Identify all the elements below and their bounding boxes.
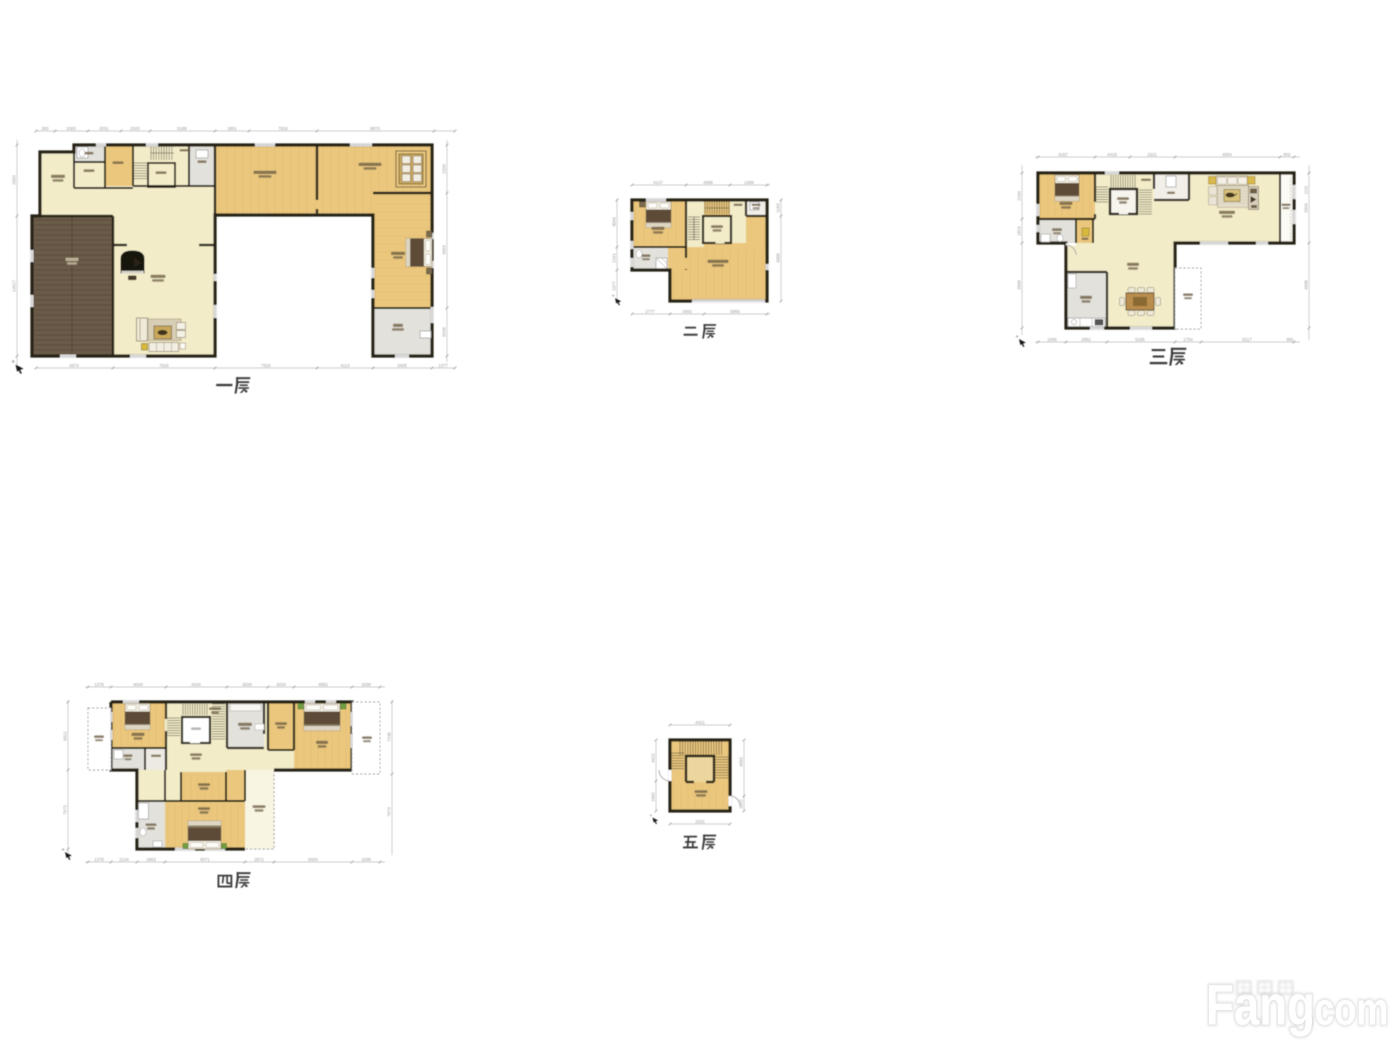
svg-text:2012: 2012 [739,799,744,809]
svg-text:4553: 4553 [442,245,447,255]
svg-text:2489: 2489 [744,180,754,185]
svg-text:2553: 2553 [12,175,17,185]
svg-text:4421: 4421 [695,720,705,725]
svg-text:6956: 6956 [730,309,740,314]
svg-text:3483: 3483 [682,309,692,314]
svg-text:3908: 3908 [1017,280,1022,290]
svg-text:14517: 14517 [12,279,17,292]
svg-text:2031: 2031 [99,126,109,131]
svg-text:4908: 4908 [1304,280,1309,290]
svg-text:3161: 3161 [695,819,705,824]
svg-text:2164: 2164 [1017,191,1022,201]
svg-text:1838: 1838 [361,682,371,687]
svg-text:2020: 2020 [130,126,140,131]
svg-text:7240: 7240 [387,732,392,742]
svg-text:4988: 4988 [703,180,713,185]
svg-text:3028: 3028 [242,682,252,687]
svg-text:2320: 2320 [442,164,447,174]
svg-text:3334: 3334 [1304,203,1309,213]
svg-text:4147: 4147 [653,180,663,185]
svg-text:4974: 4974 [69,363,79,368]
svg-text:7973: 7973 [63,805,68,815]
svg-text:4906: 4906 [776,253,781,263]
svg-text:1662: 1662 [651,792,656,802]
svg-text:5188: 5188 [177,126,187,131]
svg-text:1083: 1083 [66,126,76,131]
svg-text:3405: 3405 [397,363,407,368]
svg-text:7916: 7916 [278,126,288,131]
svg-text:1183: 1183 [776,203,781,213]
svg-text:6217: 6217 [1242,337,1252,342]
svg-text:4044: 4044 [133,682,143,687]
svg-text:4422: 4422 [651,753,656,763]
svg-text:2777: 2777 [645,309,655,314]
svg-text:4563: 4563 [739,757,744,767]
svg-text:1521: 1521 [1147,152,1157,157]
svg-text:1754: 1754 [1183,337,1193,342]
svg-text:4064: 4064 [1222,152,1232,157]
svg-text:1815: 1815 [1017,226,1022,236]
svg-text:1377: 1377 [438,363,448,368]
svg-text:300: 300 [41,126,49,131]
svg-text:1066: 1066 [1047,337,1057,342]
svg-text:6256: 6256 [442,327,447,337]
svg-text:2952: 2952 [1081,337,1091,342]
svg-text:7916: 7916 [159,363,169,368]
svg-text:1111: 1111 [1304,185,1309,194]
svg-text:2134: 2134 [119,857,129,862]
svg-text:4157: 4157 [1058,152,1068,157]
svg-text:1378: 1378 [94,857,104,862]
svg-text:2191: 2191 [612,253,617,263]
svg-text:1801: 1801 [227,126,237,131]
svg-text:902: 902 [1283,152,1291,157]
svg-text:5004: 5004 [308,857,318,862]
svg-text:2872: 2872 [254,857,264,862]
svg-text:5186: 5186 [1135,337,1145,342]
svg-text:4114: 4114 [340,363,350,368]
svg-text:992: 992 [1286,337,1294,342]
svg-text:7916: 7916 [261,363,271,368]
svg-text:6912: 6912 [63,731,68,741]
svg-text:.com: .com [1304,984,1388,1035]
svg-text:2377: 2377 [612,281,617,291]
svg-text:3044: 3044 [612,217,617,227]
svg-text:3034: 3034 [276,682,286,687]
svg-text:1838: 1838 [361,857,371,862]
svg-text:1378: 1378 [94,682,104,687]
svg-text:4434: 4434 [191,682,201,687]
svg-text:1963: 1963 [146,857,156,862]
svg-text:8873: 8873 [370,126,380,131]
svg-text:4418: 4418 [1107,152,1117,157]
svg-text:4952: 4952 [318,682,328,687]
svg-text:6071: 6071 [200,857,210,862]
svg-text:7973: 7973 [387,807,392,817]
